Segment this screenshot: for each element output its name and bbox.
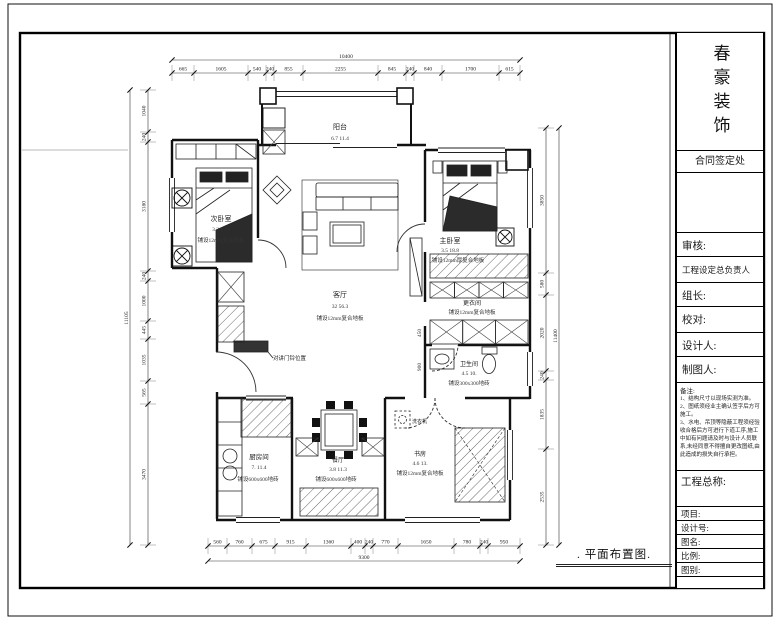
room-label-kitchen: 厨房间 <box>249 452 269 461</box>
field-draftsman: 制图人: <box>677 357 763 383</box>
dimension-label: 915 <box>286 540 295 546</box>
frame-border <box>20 33 764 588</box>
room-label-bath: 卫生间 <box>460 360 478 368</box>
dimension-label: 665 <box>179 67 188 73</box>
company-name: 春豪装饰 <box>708 44 733 140</box>
field-scale: 比例: <box>677 549 763 563</box>
dimension-label: 950 <box>500 540 509 546</box>
dimension-label: 855 <box>284 67 293 73</box>
field-drawing-name: 图名: <box>677 535 763 549</box>
field-reviewer: 审核: <box>677 233 763 257</box>
outer-border <box>8 4 772 616</box>
company-cell: 春豪装饰 <box>677 33 763 151</box>
dimension-label: 11105 <box>124 311 130 325</box>
note-line: 3、水电、吊顶等隐蔽工程须经验收合格后方可进行下道工序,施工中如有问题请及时与设… <box>680 420 760 460</box>
notes-title: 备注: <box>680 385 760 395</box>
room-label-bedroom2: 次卧室 <box>211 214 232 223</box>
hatch-box <box>241 399 291 437</box>
field-chief-engineer: 工程设定总负责人 <box>677 257 763 283</box>
svg-text:4.5 10.: 4.5 10. <box>461 371 477 377</box>
dimension-label: 780 <box>463 540 472 546</box>
dimension-label: 560 <box>213 540 222 546</box>
svg-text:7. 11.4: 7. 11.4 <box>252 465 267 471</box>
dimension-label: 240 <box>266 67 275 73</box>
svg-text:3.5 18.8: 3.5 18.8 <box>441 248 459 254</box>
hatch-box <box>455 428 505 502</box>
room-label-dining: 餐厅 <box>332 456 344 464</box>
dimension-label: 840 <box>424 67 433 73</box>
dimension-label: 1605 <box>216 67 227 73</box>
dimension-label: 2020 <box>540 327 546 338</box>
field-designer: 设计人: <box>677 333 763 357</box>
dimension-label: 10400 <box>339 54 353 60</box>
field-project: 项目: <box>677 507 763 521</box>
field-drawing-type: 图别: <box>677 563 763 577</box>
dimension-label: 1000 <box>142 295 148 306</box>
svg-text:4.6 13.: 4.6 13. <box>412 461 428 467</box>
dimension-label: 11400 <box>553 329 559 343</box>
field-design-no: 设计号: <box>677 521 763 535</box>
dimension-label: 1835 <box>540 409 546 420</box>
room-label-balcony: 阳台 <box>333 122 347 131</box>
floor-plan-drawing: 6651605540240855225584524084017006151040… <box>0 0 780 624</box>
dimension-label: 615 <box>505 67 514 73</box>
plan-title: . 平面布置图. <box>556 546 672 567</box>
svg-text:铺设600x600地砖: 铺设600x600地砖 <box>315 475 357 483</box>
dimension-label: 770 <box>381 540 390 546</box>
dimension-label: 240 <box>406 67 415 73</box>
svg-text:铺设12mm复合地板: 铺设12mm复合地板 <box>197 236 245 244</box>
room-label-dressing: 更衣间 <box>463 299 481 307</box>
note-line: 1、结构尺寸以现场实测为准。 <box>680 396 760 404</box>
dimension-label: 3850 <box>540 195 546 206</box>
dimension-label: 1040 <box>142 105 148 116</box>
dimension-label: 240 <box>480 540 489 546</box>
cad-sheet: 6651605540240855225584524084017006151040… <box>0 0 780 624</box>
hatch-box <box>300 488 378 516</box>
contract-cell: 合同签定处 <box>677 151 763 173</box>
dimension-label: 240 <box>365 540 374 546</box>
svg-text:900: 900 <box>417 363 423 372</box>
room-label-study: 书房 <box>414 450 426 458</box>
svg-text:32 56.3: 32 56.3 <box>332 304 349 310</box>
dimension-label: 2255 <box>335 67 346 73</box>
dimension-label: 565 <box>142 388 148 397</box>
svg-text:3.8 11.3: 3.8 11.3 <box>329 467 347 473</box>
dimension-label: 240 <box>142 133 148 142</box>
dimension-label: 2535 <box>540 491 546 502</box>
dimension-label: 400 <box>354 540 363 546</box>
note-line: 2、图纸须经业主确认签字后方可施工。 <box>680 404 760 420</box>
dimension-label: 3180 <box>142 201 148 212</box>
svg-text:铺设300x300地砖: 铺设300x300地砖 <box>448 379 490 387</box>
blank-cell <box>677 577 763 588</box>
svg-text:铺设12mm复合地板: 铺设12mm复合地板 <box>396 469 444 477</box>
svg-text:铺设12mm复合地板: 铺设12mm复合地板 <box>448 308 496 316</box>
blank-cell <box>677 173 763 233</box>
dimension-label: 3470 <box>142 469 148 480</box>
door-arcs <box>216 224 465 428</box>
dimension-label: 760 <box>235 540 244 546</box>
room-label-living: 客厅 <box>333 290 347 299</box>
columns <box>260 88 528 170</box>
title-block: 春豪装饰 合同签定处 审核: 工程设定总负责人 组长: 校对: 设计人: 制图人… <box>675 33 763 588</box>
dimension-label: 1035 <box>142 354 148 365</box>
project-title-cell: 工程总称: <box>677 471 763 507</box>
dimension-label: 445 <box>142 326 148 335</box>
washer-annotation: 洗衣机 <box>412 418 427 425</box>
dimension-label: 1700 <box>465 67 476 73</box>
dimension-label: 1360 <box>323 540 334 546</box>
field-group-leader: 组长: <box>677 283 763 307</box>
notes-cell: 备注: 1、结构尺寸以现场实测为准。 2、图纸须经业主确认签字后方可施工。 3、… <box>677 383 763 471</box>
svg-text:6.7 11.4: 6.7 11.4 <box>331 136 349 142</box>
dimension-label: 240 <box>540 371 546 380</box>
svg-text:铺设12mm厚复合地板: 铺设12mm厚复合地板 <box>432 256 485 264</box>
dimension-label: 580 <box>540 280 546 289</box>
dimension-label: 540 <box>253 67 262 73</box>
dimension-label: 845 <box>388 67 397 73</box>
dimension-label: 675 <box>259 540 268 546</box>
svg-text:3.2 17.8: 3.2 17.8 <box>212 227 230 233</box>
svg-text:450: 450 <box>417 329 423 338</box>
dimension-label: 240 <box>142 272 148 281</box>
svg-text:铺设12mm复合地板: 铺设12mm复合地板 <box>316 314 364 322</box>
intercom-annotation: 对讲门铃位置 <box>273 354 307 362</box>
dimension-label: 1650 <box>421 540 432 546</box>
svg-text:铺设600x600地砖: 铺设600x600地砖 <box>237 475 279 483</box>
field-proofreader: 校对: <box>677 307 763 333</box>
hatch-box <box>218 306 244 342</box>
room-label-master: 主卧室 <box>440 236 461 245</box>
dimension-label: 9300 <box>359 555 370 561</box>
